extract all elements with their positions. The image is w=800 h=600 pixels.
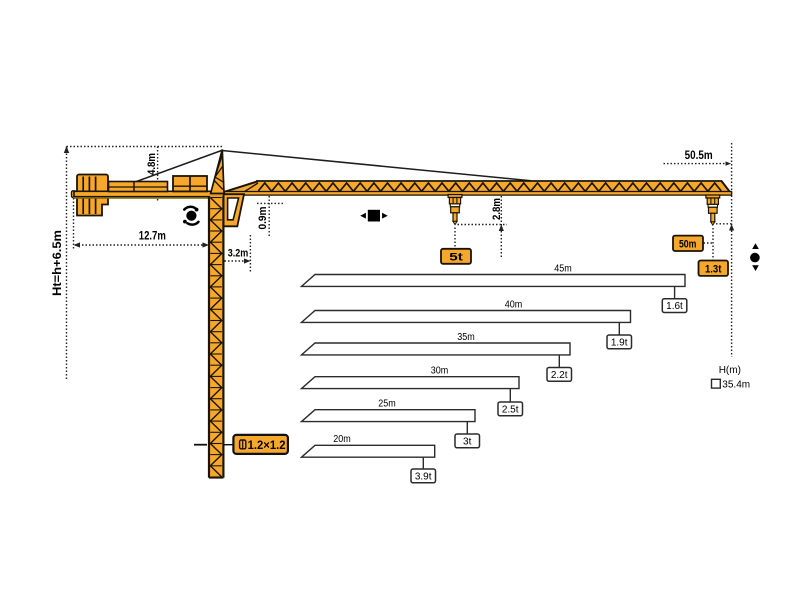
- svg-text:3.9t: 3.9t: [415, 471, 432, 482]
- svg-text:2.2t: 2.2t: [551, 370, 568, 381]
- svg-text:3t: 3t: [463, 436, 472, 447]
- svg-text:2.8m: 2.8m: [491, 198, 503, 220]
- svg-text:5t: 5t: [449, 252, 463, 264]
- svg-text:30m: 30m: [431, 366, 449, 377]
- svg-text:40m: 40m: [505, 299, 523, 310]
- svg-text:25m: 25m: [378, 399, 396, 410]
- svg-text:35m: 35m: [457, 332, 475, 343]
- svg-text:50m: 50m: [679, 238, 697, 250]
- svg-text:2.5t: 2.5t: [502, 404, 519, 415]
- svg-text:1.3t: 1.3t: [705, 263, 722, 275]
- svg-text:12.7m: 12.7m: [139, 230, 166, 242]
- svg-text:Ht=h+6.5m: Ht=h+6.5m: [52, 230, 64, 296]
- svg-text:1.2×1.2: 1.2×1.2: [248, 439, 286, 452]
- svg-text:35.4m: 35.4m: [722, 380, 750, 391]
- svg-text:3.2m: 3.2m: [228, 248, 249, 260]
- svg-text:20m: 20m: [333, 434, 351, 445]
- svg-text:0.9m: 0.9m: [257, 206, 269, 229]
- svg-text:H(m): H(m): [719, 365, 741, 376]
- svg-text:45m: 45m: [554, 263, 572, 274]
- svg-text:1.9t: 1.9t: [611, 337, 628, 348]
- svg-text:1.6t: 1.6t: [666, 301, 683, 312]
- svg-text:4.8m: 4.8m: [146, 153, 158, 175]
- svg-text:50.5m: 50.5m: [685, 150, 713, 162]
